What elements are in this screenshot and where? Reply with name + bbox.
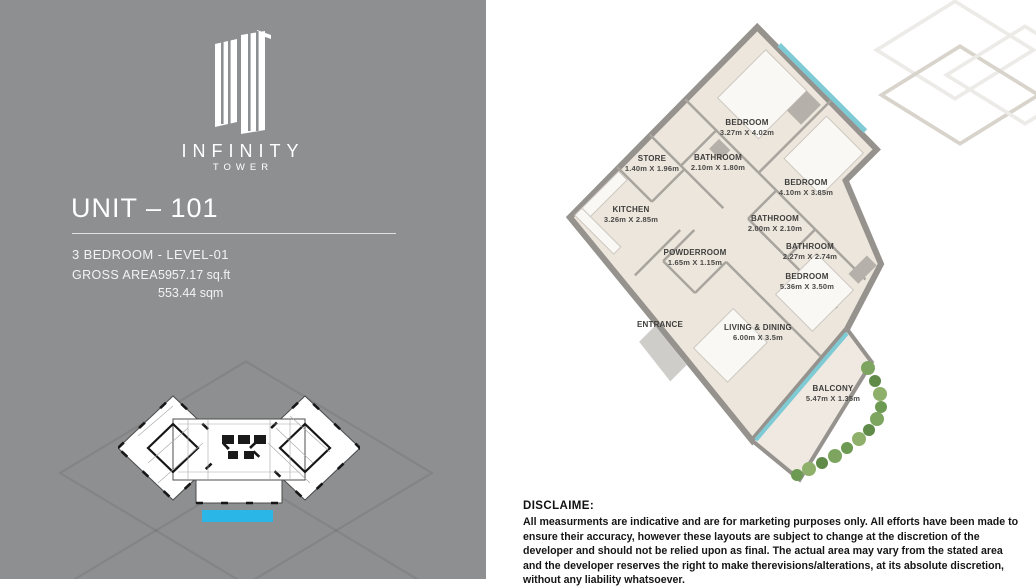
unit-floor-plan bbox=[500, 0, 1036, 500]
highlighted-unit-marker bbox=[202, 510, 273, 522]
tower-logo-icon bbox=[213, 30, 273, 138]
unit-title: UNIT – 101 bbox=[71, 193, 219, 224]
title-divider bbox=[72, 233, 396, 234]
brand-subtitle: TOWER bbox=[143, 162, 343, 173]
area-sqft-value: 5957.17 sq.ft bbox=[158, 268, 230, 282]
disclaimer-body: All measurments are indicative and are f… bbox=[523, 515, 1022, 588]
brand-name: INFINITY bbox=[143, 141, 343, 162]
key-plan-floor-plate bbox=[118, 388, 360, 528]
unit-type-level: 3 BEDROOM - LEVEL-01 bbox=[72, 247, 229, 262]
disclaimer: DISCLAIME: All measurments are indicativ… bbox=[523, 500, 1022, 588]
info-panel: INFINITY TOWER UNIT – 101 3 BEDROOM - LE… bbox=[0, 0, 486, 579]
gross-area-label: GROSS AREA bbox=[72, 268, 158, 282]
area-sqm-value: 553.44 sqm bbox=[158, 286, 223, 300]
disclaimer-title: DISCLAIME: bbox=[523, 500, 1022, 512]
